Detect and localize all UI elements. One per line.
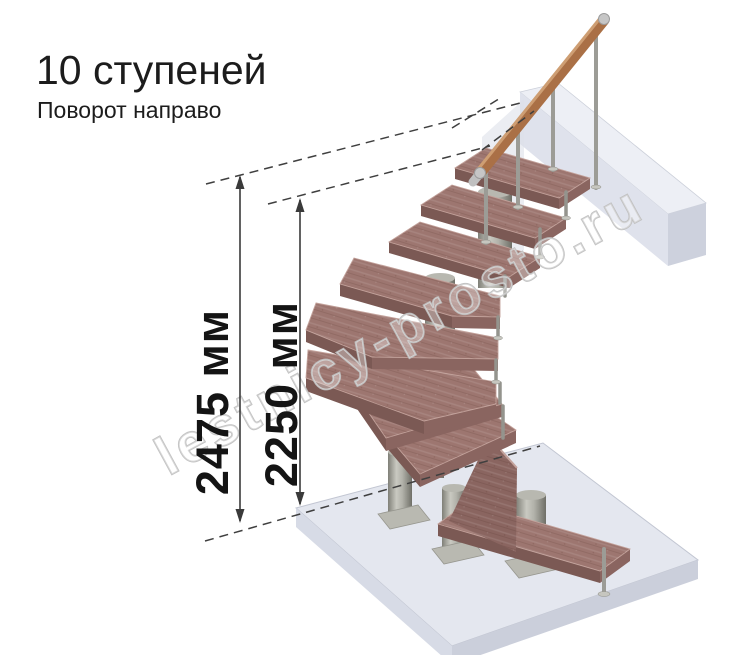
dimension-height-to-top-step: 2250 мм (256, 198, 307, 506)
extension-line-landing-a (452, 97, 502, 128)
post-flange (481, 240, 491, 244)
arrow-down-icon (236, 509, 245, 523)
handrail-cap-top (599, 14, 610, 25)
dimension-label-height-to-top-step: 2250 мм (256, 301, 307, 487)
staircase-diagram: lestnicy-prosto.ru 2475 мм 2250 мм 10 ст… (0, 0, 743, 655)
post-flange (548, 167, 558, 171)
diagram-title: 10 ступеней (36, 47, 267, 93)
arrow-down-icon (296, 492, 305, 506)
arrow-up-icon (296, 198, 305, 212)
post-flange (494, 336, 503, 340)
diagram-subtitle: Поворот направо (37, 97, 221, 123)
staircase-diagram-canvas: lestnicy-prosto.ru 2475 мм 2250 мм 10 ст… (0, 0, 743, 655)
column-cap (516, 490, 546, 500)
dimension-label-total-height: 2475 мм (187, 309, 238, 495)
post-foot (598, 592, 610, 597)
handrail-cap-bottom (475, 168, 486, 179)
dimension-total-height: 2475 мм (187, 175, 245, 523)
post-flange (513, 205, 523, 209)
landing-end-face (668, 203, 706, 266)
arrow-up-icon (236, 175, 245, 189)
column-cap (442, 484, 466, 492)
post-flange (492, 380, 501, 384)
